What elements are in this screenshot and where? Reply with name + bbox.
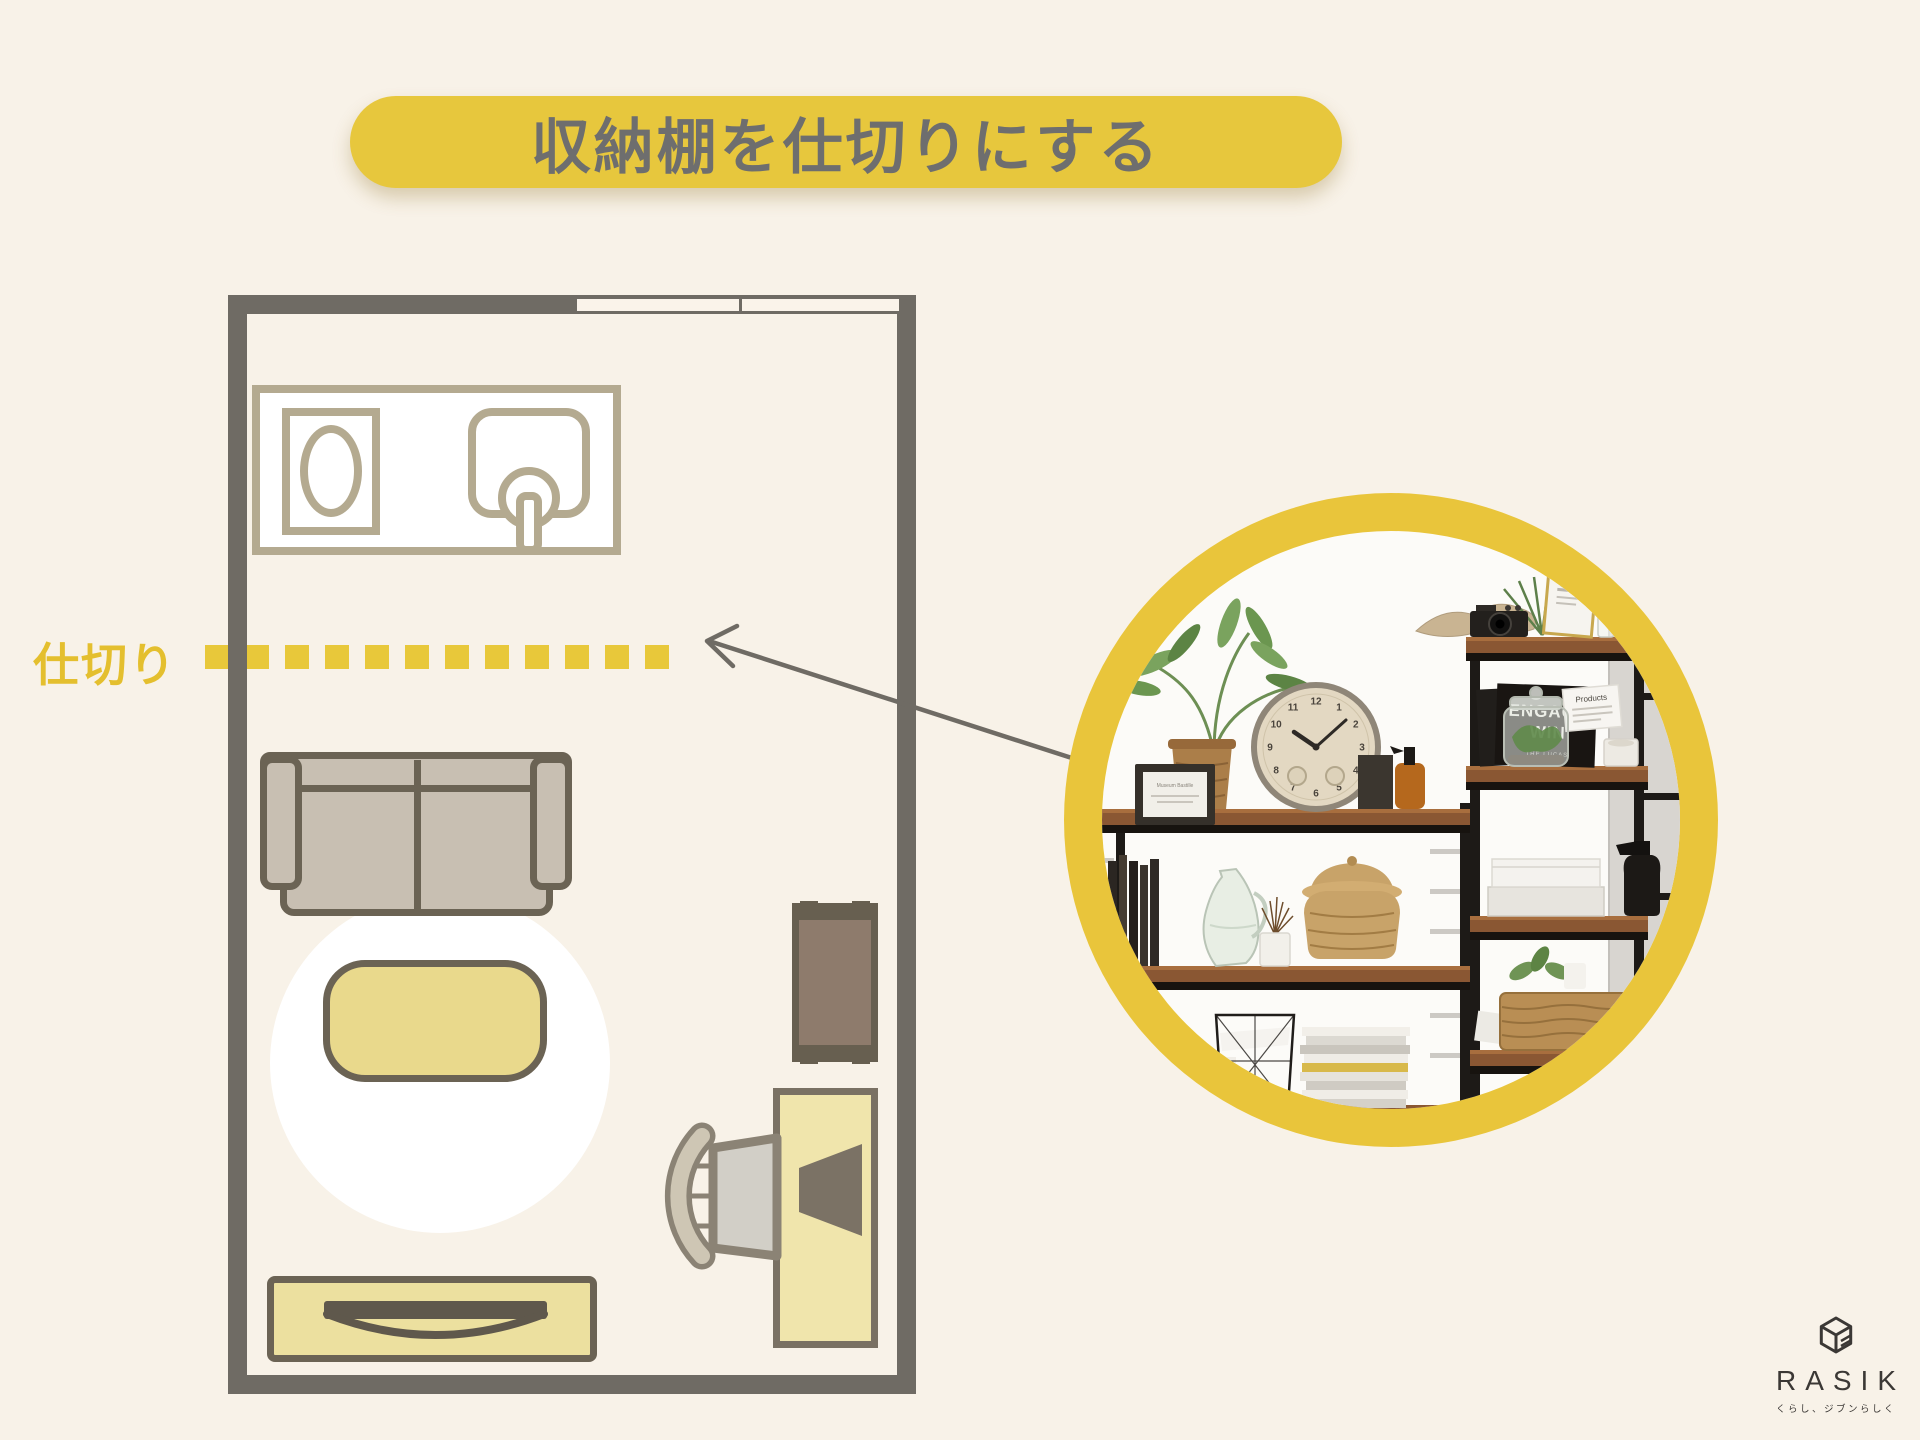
window-opening-1 xyxy=(577,299,739,311)
svg-text:3: 3 xyxy=(1359,743,1365,754)
svg-text:12: 12 xyxy=(1310,697,1322,708)
desk-chair xyxy=(678,1136,777,1256)
shelf-photo-circle: Museum Bastille 121234567891011 xyxy=(1064,493,1718,1147)
floorplan-details xyxy=(247,314,897,1375)
floorplan-room xyxy=(228,295,916,1394)
title-banner: 収納棚を仕切りにする xyxy=(350,96,1342,188)
chair-seat xyxy=(713,1138,777,1256)
infographic-canvas: 収納棚を仕切りにする 仕切り xyxy=(0,0,1920,1440)
white-boxes xyxy=(1488,859,1604,916)
svg-text:9: 9 xyxy=(1267,743,1273,754)
page-title: 収納棚を仕切りにする xyxy=(531,99,1162,186)
brand-name: RASIK xyxy=(1760,1365,1912,1397)
svg-text:2: 2 xyxy=(1353,720,1359,731)
desk-monitor xyxy=(799,1144,862,1236)
rasik-cube-icon xyxy=(1814,1314,1858,1358)
svg-text:8: 8 xyxy=(1273,766,1279,777)
brand-tagline: くらし、ジブンらしく xyxy=(1760,1401,1912,1415)
brand-logo: RASIK くらし、ジブンらしく xyxy=(1760,1314,1912,1415)
products-card: Products xyxy=(1562,685,1621,732)
glass-jar xyxy=(1504,687,1568,766)
divider-label: 仕切り xyxy=(33,629,177,695)
svg-text:10: 10 xyxy=(1271,720,1283,731)
tv-stand-legs xyxy=(327,1314,544,1335)
photo-frame: Museum Bastille xyxy=(1135,764,1215,825)
magazine-stack xyxy=(1300,1027,1410,1108)
candle-cup xyxy=(1604,739,1638,766)
svg-text:Museum Bastille: Museum Bastille xyxy=(1157,783,1194,789)
window-opening-2 xyxy=(742,299,899,311)
svg-text:1: 1 xyxy=(1336,703,1342,714)
svg-text:6: 6 xyxy=(1313,789,1319,800)
black-box xyxy=(1358,755,1393,809)
svg-text:11: 11 xyxy=(1288,703,1299,714)
